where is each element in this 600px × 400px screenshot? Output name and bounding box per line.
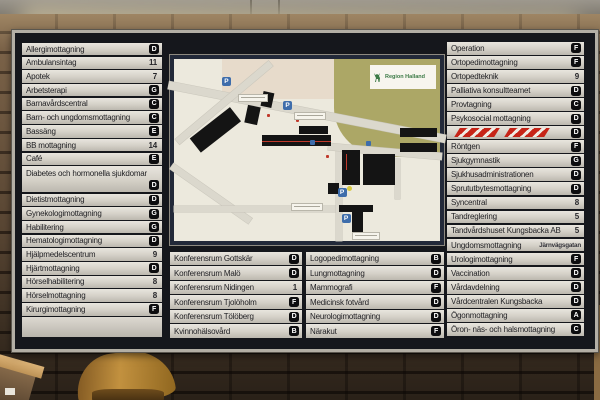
hazard-stripe-icon [454, 128, 500, 137]
department-label: Arbetsterapi [26, 86, 149, 95]
location-code-number: 1 [293, 283, 299, 292]
location-code-badge: F [571, 57, 581, 67]
location-code-badge: G [149, 222, 159, 232]
location-code-badge: F [571, 43, 581, 53]
department-label: Röntgen [451, 142, 571, 151]
department-label: Konferensrum Nidingen [174, 283, 293, 292]
location-code-badge: F [289, 297, 299, 307]
location-code-badge: D [149, 236, 159, 246]
location-code-badge: D [571, 296, 581, 306]
department-label: Hörselmottagning [26, 291, 153, 300]
map-building [342, 150, 361, 185]
department-label: Hjälpmedelscentrum [26, 250, 153, 259]
entrance-marker-icon [310, 140, 315, 145]
table-sticker [5, 388, 15, 395]
department-label: Konferensrum Tjolöholm [174, 298, 289, 307]
department-label: Öron- näs- och halsmottagning [451, 325, 571, 334]
parking-icon: P [222, 77, 231, 86]
directory-column-right: OperationFOrtopedimottagningFOrtopedtekn… [447, 42, 584, 337]
directory-row: KvinnohälsovårdB [170, 324, 302, 337]
directory-row: HjärtmottagningD [22, 262, 162, 274]
directory-row: Psykosocial mottagningD [447, 112, 584, 125]
department-label: Tandvårdshuset Kungsbacka AB [451, 226, 575, 235]
location-code-badge: A [571, 310, 581, 320]
department-label: Apotek [26, 72, 153, 81]
map-building [400, 143, 437, 152]
directory-row: RöntgenF [447, 140, 584, 153]
directory-row: HematologimottagningD [22, 235, 162, 247]
directory-row: UngdomsmottagningJärnvägsgatan [447, 239, 584, 252]
department-label: Vårdavdelning [451, 283, 571, 292]
directory-row: HabiliteringG [22, 221, 162, 233]
directory-row: KirurgimottagningF [22, 303, 162, 315]
directory-row: Konferensrum GottskärD [170, 252, 302, 265]
directory-row: Tandvårdshuset Kungsbacka AB5 [447, 225, 584, 238]
map-road [395, 159, 400, 199]
department-label: Ambulansintag [26, 58, 149, 67]
directory-row: Öron- näs- och halsmottagningC [447, 323, 584, 336]
location-code-badge: C [149, 113, 159, 123]
department-label: Provtagning [451, 100, 571, 109]
map-marker-yellow [347, 186, 352, 191]
department-label: Dietistmottagning [26, 195, 149, 204]
map-marker-red [267, 114, 270, 117]
department-label: Hematologimottagning [26, 236, 149, 245]
location-code-badge: D [149, 44, 159, 54]
location-code-badge: D [571, 184, 581, 194]
location-code-badge: F [571, 254, 581, 264]
directory-row: Palliativa konsultteametD [447, 84, 584, 97]
directory-row: AllergimottagningD [22, 43, 162, 55]
directory-row: Medicinsk fotvårdD [306, 295, 444, 308]
department-label: Konferensrum Gottskär [174, 254, 289, 263]
ceiling-seam [278, 0, 280, 14]
directory-row: Konferensrum TjolöholmF [170, 295, 302, 308]
department-label: Allergimottagning [26, 45, 149, 54]
hazard-stripe-icon [504, 128, 550, 137]
directory-row: Konferensrum Nidingen1 [170, 281, 302, 294]
department-label: BB mottagning [26, 141, 149, 150]
parking-icon: P [338, 188, 347, 197]
location-code-badge: F [149, 304, 159, 314]
location-code-badge: D [289, 254, 299, 264]
department-label: Café [26, 154, 149, 163]
department-label: Neurologimottagning [310, 312, 431, 321]
directory-row: Hjälpmedelscentrum9 [22, 248, 162, 260]
map-marker-red [326, 155, 329, 158]
department-label: Ungdomsmottagning [451, 241, 539, 250]
department-label: Ögonmottagning [451, 311, 571, 320]
directory-row: Ortopedteknik9 [447, 70, 584, 83]
map-street-label [238, 94, 268, 102]
location-code-badge: G [149, 85, 159, 95]
region-halland-logo: Region Halland [370, 65, 436, 89]
directory-row: VårdavdelningD [447, 281, 584, 294]
location-code-number: 9 [575, 72, 581, 81]
location-code-number: 8 [575, 198, 581, 207]
location-code-badge: D [571, 170, 581, 180]
directory-row: OrtopedimottagningF [447, 56, 584, 69]
department-label: Närakut [310, 327, 431, 336]
map-building [400, 128, 437, 137]
department-label: Kirurgimottagning [26, 305, 149, 314]
location-code-number: 8 [153, 277, 159, 286]
location-code-badge: D [571, 282, 581, 292]
directory-row: MammografiF [306, 281, 444, 294]
directory-column-bottom-left: Konferensrum GottskärDKonferensrum MalöD… [170, 252, 302, 339]
department-label: Medicinsk fotvård [310, 298, 431, 307]
location-code-badge: D [571, 268, 581, 278]
directory-row: NärakutF [306, 324, 444, 337]
map-building [299, 126, 328, 133]
location-code-badge: D [149, 263, 159, 273]
department-label: Tandreglering [451, 212, 575, 221]
department-label: Urologimottagning [451, 255, 571, 264]
map-route-line [262, 141, 331, 143]
department-label: Vaccination [451, 269, 571, 278]
map-building [339, 205, 374, 212]
department-label: Sjukgymnastik [451, 156, 571, 165]
map-building [363, 154, 395, 185]
directory-row: SjukhusadministrationenD [447, 168, 584, 181]
ceiling-seam [250, 0, 252, 14]
department-label: Sprututbytesmottagning [451, 184, 571, 193]
directory-row: LogopedimottagningB [306, 252, 444, 265]
directory-row: Hörselhabilitering8 [22, 276, 162, 288]
department-label: Bassäng [26, 127, 149, 136]
department-label: Hörselhabilitering [26, 277, 153, 286]
directory-row: VaccinationD [447, 267, 584, 280]
directory-row: ArbetsterapiG [22, 84, 162, 96]
department-label: Habilitering [26, 223, 149, 232]
department-label: Diabetes och hormonella sjukdomar [26, 166, 149, 179]
empty-directory-strip [22, 317, 162, 337]
directory-row: Diabetes och hormonella sjukdomarD [22, 166, 162, 192]
directory-row: NeurologimottagningD [306, 310, 444, 323]
site-map-panel: Region Halland P P P P [170, 55, 444, 245]
directory-row: CaféE [22, 153, 162, 165]
department-label: Hjärtmottagning [26, 264, 149, 273]
location-code-number: 5 [575, 226, 581, 235]
directory-row: SprututbytesmottagningD [447, 182, 584, 195]
location-code-badge: F [431, 326, 441, 336]
map-street-label [352, 232, 380, 240]
map-street-label [291, 203, 323, 211]
directory-row: OperationF [447, 42, 584, 55]
directory-row: Ambulansintag11 [22, 57, 162, 69]
department-label: Logopedimottagning [310, 254, 431, 263]
department-label: Lungmottagning [310, 269, 431, 278]
location-code-number: 14 [149, 141, 160, 150]
location-code-badge: F [431, 283, 441, 293]
location-code-badge: D [571, 86, 581, 96]
department-label: Palliativa konsultteamet [451, 86, 571, 95]
location-code-number: 5 [575, 212, 581, 221]
department-label: Vårdcentralen Kungsbacka [451, 297, 571, 306]
deer-icon [373, 72, 382, 83]
directory-row: Syncentral8 [447, 197, 584, 210]
map-building [244, 105, 261, 126]
location-code-badge: G [571, 156, 581, 166]
directory-row: LungmottagningD [306, 266, 444, 279]
department-label: Kvinnohälsovård [174, 327, 289, 336]
directory-row: ÖgonmottagningA [447, 309, 584, 322]
location-code-badge: D [289, 268, 299, 278]
directory-column-left: AllergimottagningDAmbulansintag11Apotek7… [22, 43, 162, 317]
directory-row: D [447, 126, 584, 139]
parking-icon: P [283, 101, 292, 110]
location-code-badge: D [431, 297, 441, 307]
location-code-number: 7 [153, 72, 159, 81]
location-code-badge: G [149, 209, 159, 219]
entrance-marker-icon [366, 141, 371, 146]
department-label: Barn- och ungdomsmottagning [26, 113, 149, 122]
department-label: Syncentral [451, 198, 575, 207]
directory-row: Konferensrum TölöbergD [170, 310, 302, 323]
directory-row: Vårdcentralen KungsbackaD [447, 295, 584, 308]
directory-row: UrologimottagningF [447, 253, 584, 266]
department-label: Konferensrum Malö [174, 269, 289, 278]
location-code-number: 11 [149, 58, 159, 67]
directory-row: GynekologimottagningG [22, 207, 162, 219]
map-road [170, 163, 252, 224]
location-code-badge: D [149, 180, 159, 190]
directory-row: BB mottagning14 [22, 139, 162, 151]
location-code-badge: C [149, 99, 159, 109]
department-label: Gynekologimottagning [26, 209, 149, 218]
department-label: Ortopedteknik [451, 72, 575, 81]
location-code-badge: C [571, 324, 581, 334]
department-label: Operation [451, 44, 571, 53]
location-code-number: 9 [153, 250, 159, 259]
directory-row: ProvtagningC [447, 98, 584, 111]
department-label: Psykosocial mottagning [451, 114, 571, 123]
department-label: Barnavårdscentral [26, 99, 149, 108]
department-label: Sjukhusadministrationen [451, 170, 571, 179]
location-code-badge: B [289, 326, 299, 336]
location-code-text: Järnvägsgatan [539, 242, 581, 249]
location-code-badge: D [289, 312, 299, 322]
directory-row: SjukgymnastikG [447, 154, 584, 167]
directory-row: Konferensrum MalöD [170, 266, 302, 279]
location-code-badge: D [431, 268, 441, 278]
directory-row: Tandreglering5 [447, 211, 584, 224]
directory-row: BassängE [22, 125, 162, 137]
wooden-chair-seat [92, 389, 164, 400]
location-code-badge: D [571, 114, 581, 124]
parking-icon: P [342, 214, 351, 223]
directory-row: Barn- och ungdomsmottagningC [22, 111, 162, 123]
location-code-number: 8 [153, 291, 159, 300]
department-label: Konferensrum Tölöberg [174, 312, 289, 321]
location-code-badge: E [149, 126, 159, 136]
map-route-line [346, 154, 348, 170]
region-halland-text: Region Halland [385, 74, 425, 80]
directory-row: DietistmottagningD [22, 194, 162, 206]
location-code-badge: C [571, 100, 581, 110]
directory-row: Hörselmottagning8 [22, 289, 162, 301]
department-label: Mammografi [310, 283, 431, 292]
directory-row: BarnavårdscentralC [22, 98, 162, 110]
location-code-badge: D [571, 128, 581, 138]
location-code-badge: E [149, 154, 159, 164]
location-code-badge: F [571, 142, 581, 152]
directory-column-bottom-right: LogopedimottagningBLungmottagningDMammog… [306, 252, 444, 339]
location-code-badge: B [431, 254, 441, 264]
department-label: Ortopedimottagning [451, 58, 571, 67]
directory-row: Apotek7 [22, 70, 162, 82]
map-street-label [294, 112, 326, 120]
location-code-badge: D [431, 312, 441, 322]
location-code-badge: D [149, 195, 159, 205]
hospital-directory-photo: AllergimottagningDAmbulansintag11Apotek7… [0, 0, 600, 400]
